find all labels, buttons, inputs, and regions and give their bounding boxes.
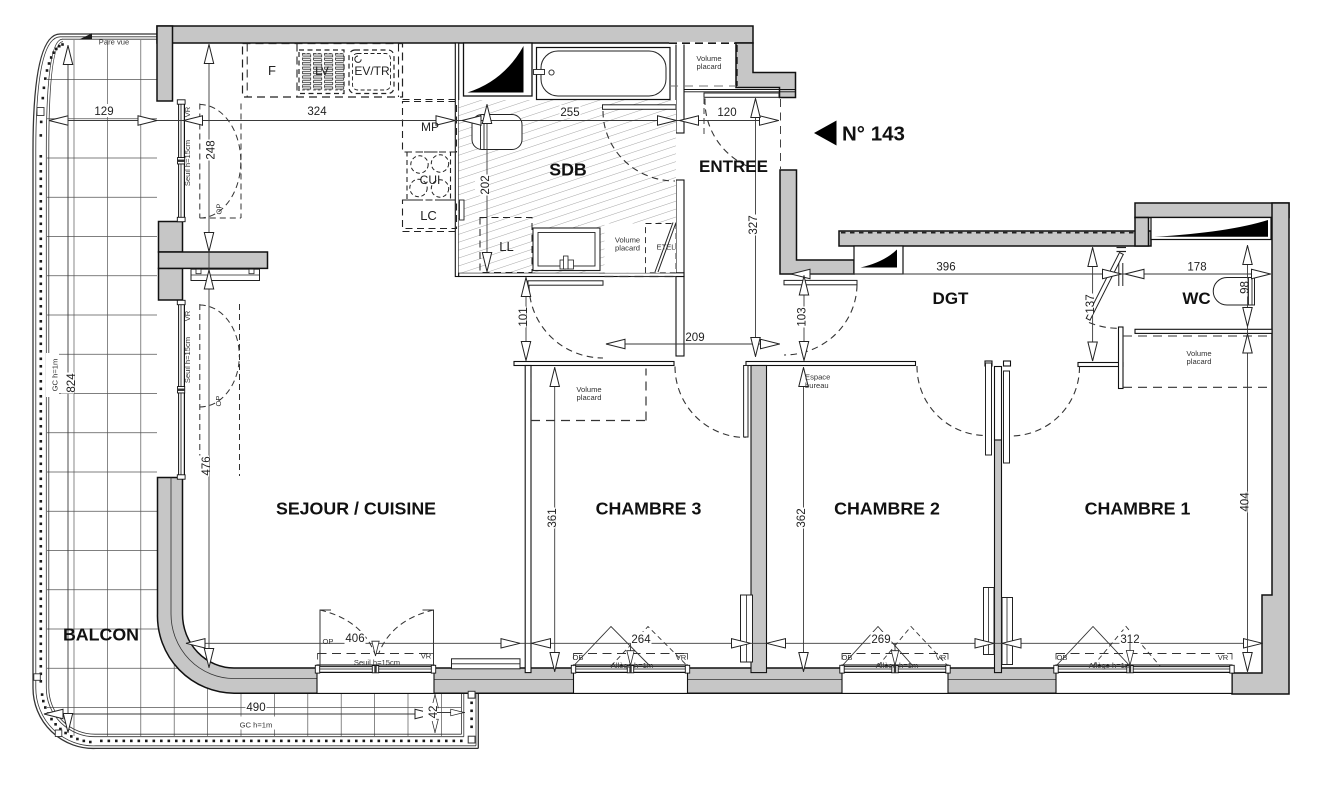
svg-text:OB: OB (842, 653, 853, 662)
svg-text:490: 490 (246, 702, 265, 714)
svg-text:255: 255 (560, 107, 579, 119)
svg-text:396: 396 (936, 262, 955, 274)
svg-text:CHAMBRE 2: CHAMBRE 2 (834, 499, 940, 519)
svg-text:placard: placard (615, 244, 640, 253)
svg-text:202: 202 (480, 175, 492, 194)
svg-text:CHAMBRE 1: CHAMBRE 1 (1085, 499, 1191, 519)
svg-text:VR: VR (1218, 653, 1229, 662)
svg-text:178: 178 (1187, 262, 1206, 274)
svg-text:120: 120 (717, 107, 736, 119)
svg-text:F: F (268, 63, 276, 78)
svg-text:N° 143: N° 143 (842, 123, 905, 146)
svg-text:OP: OP (215, 204, 224, 215)
svg-text:98: 98 (1240, 281, 1252, 294)
svg-text:137: 137 (1085, 294, 1097, 313)
svg-text:placard: placard (697, 62, 722, 71)
svg-text:LC: LC (420, 208, 437, 223)
svg-text:Seuil h=15cm: Seuil h=15cm (354, 658, 400, 667)
svg-text:406: 406 (345, 633, 364, 645)
svg-text:OB: OB (1057, 653, 1068, 662)
svg-text:EV/TR: EV/TR (354, 64, 390, 78)
svg-text:Allège h=1m: Allège h=1m (611, 661, 653, 670)
svg-text:ENTREE: ENTREE (699, 157, 768, 176)
svg-text:placard: placard (577, 393, 602, 402)
svg-text:VR: VR (183, 310, 192, 321)
svg-text:LL: LL (499, 239, 513, 254)
svg-text:GC h=1m: GC h=1m (240, 721, 273, 730)
svg-text:placard: placard (1187, 357, 1212, 366)
svg-text:Pare vue: Pare vue (99, 38, 129, 47)
svg-text:LV: LV (315, 64, 329, 78)
svg-text:327: 327 (748, 215, 760, 234)
svg-text:OP: OP (214, 396, 223, 407)
svg-text:42: 42 (428, 706, 440, 719)
svg-text:VR: VR (936, 653, 947, 662)
svg-text:Allège h=1m: Allège h=1m (1089, 661, 1131, 670)
svg-text:476: 476 (201, 456, 213, 475)
svg-text:OP: OP (323, 637, 334, 646)
svg-text:SDB: SDB (549, 160, 587, 180)
svg-text:WC: WC (1182, 289, 1210, 308)
svg-text:404: 404 (1240, 492, 1252, 512)
svg-text:361: 361 (547, 508, 559, 527)
svg-text:103: 103 (797, 307, 809, 326)
svg-text:362: 362 (796, 508, 808, 527)
svg-text:101: 101 (518, 307, 530, 326)
svg-text:209: 209 (685, 332, 704, 344)
svg-text:CUI: CUI (420, 173, 441, 187)
svg-text:824: 824 (66, 373, 78, 393)
svg-text:129: 129 (94, 106, 113, 118)
svg-text:269: 269 (871, 634, 890, 646)
svg-text:ETEL: ETEL (657, 243, 676, 252)
svg-text:264: 264 (631, 634, 651, 646)
svg-text:bureau: bureau (805, 381, 829, 390)
svg-text:Seuil h=15cm: Seuil h=15cm (183, 337, 192, 383)
svg-text:OB: OB (573, 653, 584, 662)
svg-text:248: 248 (206, 140, 218, 159)
svg-text:GC h=1m: GC h=1m (51, 359, 60, 392)
svg-text:Seuil h=15cm: Seuil h=15cm (183, 140, 192, 186)
svg-text:VR: VR (183, 106, 192, 117)
svg-text:DGT: DGT (933, 289, 970, 308)
svg-text:Allège h=1m: Allège h=1m (876, 661, 918, 670)
svg-text:CHAMBRE 3: CHAMBRE 3 (596, 499, 702, 519)
svg-text:MP: MP (421, 120, 439, 134)
svg-text:SEJOUR / CUISINE: SEJOUR / CUISINE (276, 499, 436, 519)
svg-text:BALCON: BALCON (63, 625, 139, 645)
svg-text:324: 324 (307, 106, 327, 118)
svg-text:VR: VR (676, 653, 687, 662)
svg-text:VR: VR (421, 652, 432, 661)
